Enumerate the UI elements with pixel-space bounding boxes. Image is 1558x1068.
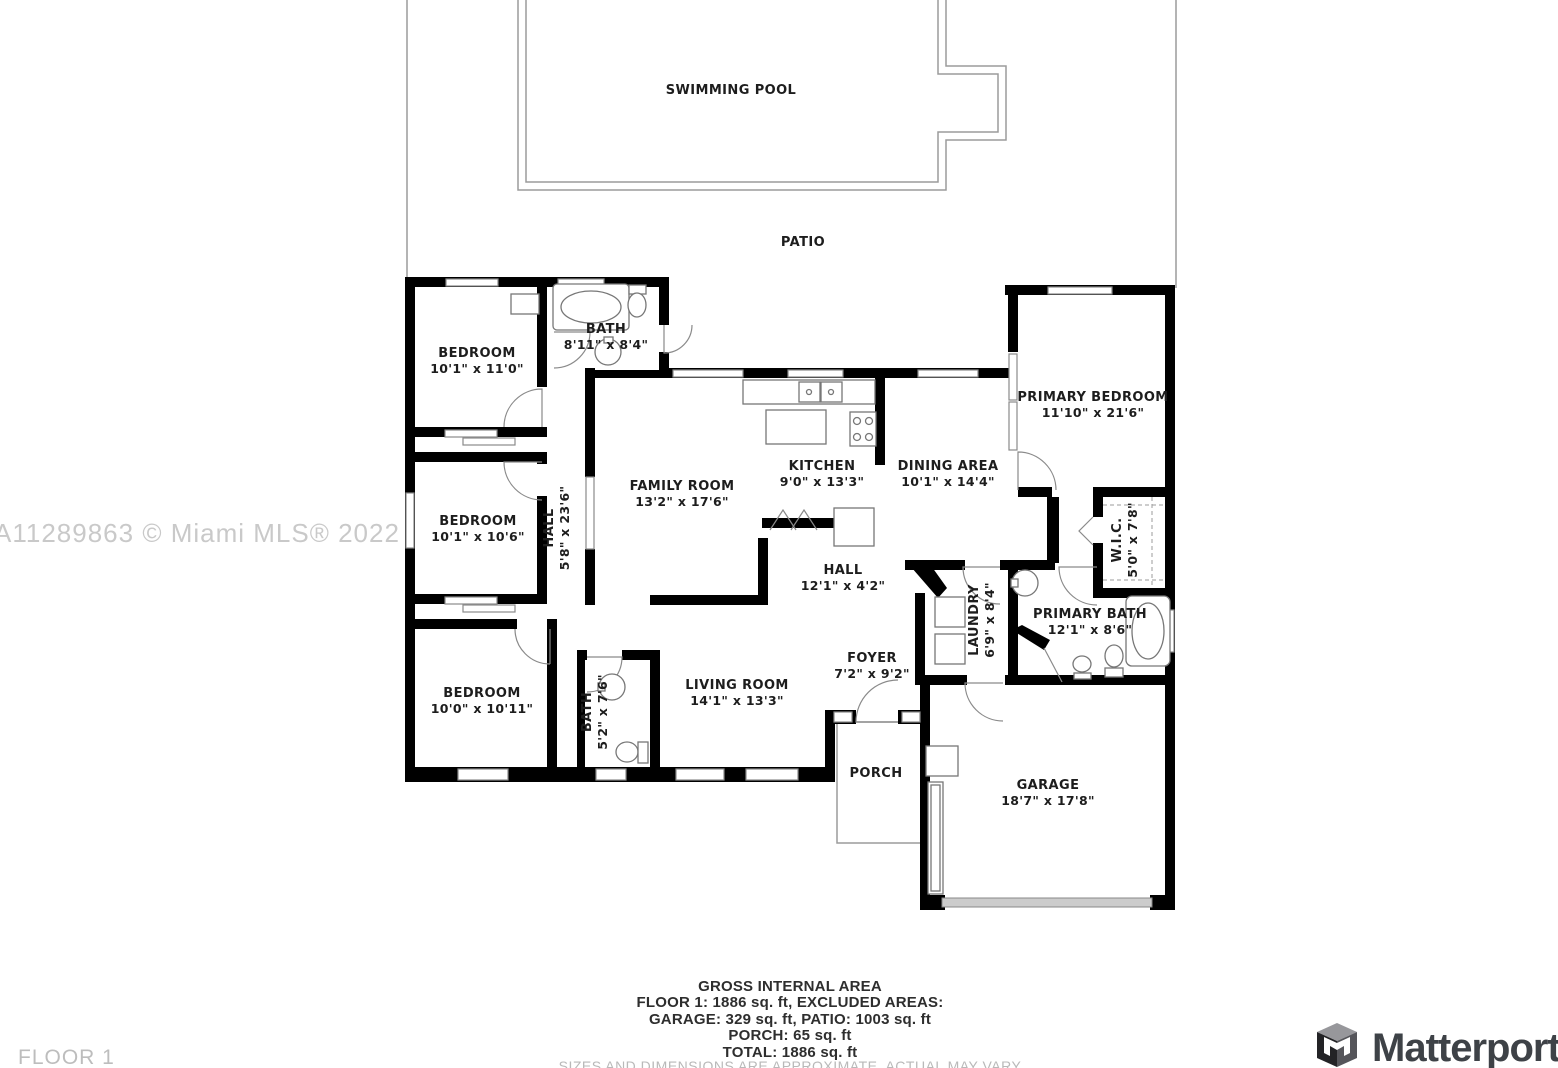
- washer-icon: [935, 597, 965, 627]
- stove-icon: [850, 412, 876, 446]
- svg-text:10'1" x 10'6": 10'1" x 10'6": [431, 529, 525, 544]
- label-dining-area: DINING AREA 10'1" x 14'4": [898, 459, 999, 489]
- svg-text:5'2" x 7'6": 5'2" x 7'6": [595, 674, 610, 750]
- svg-text:KITCHEN: KITCHEN: [789, 459, 856, 474]
- svg-text:10'1" x 11'0": 10'1" x 11'0": [430, 361, 524, 376]
- room-labels: SWIMMING POOL PATIO BEDROOM 10'1" x 11'0…: [430, 83, 1168, 808]
- label-kitchen: KITCHEN 9'0" x 13'3": [780, 459, 865, 489]
- label-wic: W.I.C. 5'0" x 7'8": [1110, 502, 1140, 578]
- svg-text:FOYER: FOYER: [847, 651, 897, 666]
- svg-text:14'1" x 13'3": 14'1" x 13'3": [690, 693, 784, 708]
- mls-watermark: A11289863 © Miami MLS® 2022: [0, 518, 400, 548]
- svg-text:12'1" x 8'6": 12'1" x 8'6": [1048, 622, 1133, 637]
- label-patio: PATIO: [781, 235, 825, 250]
- svg-text:PRIMARY BEDROOM: PRIMARY BEDROOM: [1017, 390, 1168, 405]
- summary-garage-patio: GARAGE: 329 sq. ft, PATIO: 1003 sq. ft: [649, 1011, 931, 1028]
- label-bedroom-1: BEDROOM 10'1" x 11'0": [430, 346, 524, 376]
- label-laundry: LAUNDRY 6'9" x 8'4": [967, 582, 997, 658]
- svg-text:BATH: BATH: [586, 322, 626, 337]
- svg-text:BATH: BATH: [580, 692, 595, 732]
- summary-disclaimer: SIZES AND DIMENSIONS ARE APPROXIMATE, AC…: [559, 1058, 1022, 1068]
- summary-floor: FLOOR 1: 1886 sq. ft, EXCLUDED AREAS:: [637, 994, 944, 1011]
- svg-text:BEDROOM: BEDROOM: [438, 346, 515, 361]
- label-primary-bedroom: PRIMARY BEDROOM 11'10" x 21'6": [1017, 390, 1168, 420]
- area-summary: GROSS INTERNAL AREA FLOOR 1: 1886 sq. ft…: [559, 978, 1022, 1068]
- toilet-icon: [616, 742, 638, 762]
- svg-text:LIVING ROOM: LIVING ROOM: [685, 678, 789, 693]
- svg-text:FAMILY ROOM: FAMILY ROOM: [630, 479, 735, 494]
- svg-text:HALL: HALL: [823, 563, 862, 578]
- label-swimming-pool: SWIMMING POOL: [666, 83, 796, 98]
- summary-title: GROSS INTERNAL AREA: [698, 978, 882, 995]
- svg-text:11'10" x 21'6": 11'10" x 21'6": [1042, 405, 1145, 420]
- matterport-wordmark: Matterport: [1372, 1026, 1558, 1068]
- svg-text:6'9" x 8'4": 6'9" x 8'4": [982, 582, 997, 658]
- svg-text:8'11" x 8'4": 8'11" x 8'4": [564, 337, 649, 352]
- garage-door-icon: [942, 898, 1152, 907]
- svg-text:7'2" x 9'2": 7'2" x 9'2": [834, 666, 910, 681]
- svg-text:LAUNDRY: LAUNDRY: [967, 584, 982, 656]
- label-hall-2: HALL 12'1" x 4'2": [801, 563, 886, 593]
- svg-text:DINING AREA: DINING AREA: [898, 459, 999, 474]
- label-bedroom-2: BEDROOM 10'1" x 10'6": [431, 514, 525, 544]
- floor-number-label: FLOOR 1: [18, 1046, 115, 1068]
- label-primary-bath: PRIMARY BATH 12'1" x 8'6": [1033, 607, 1147, 637]
- label-living-room: LIVING ROOM 14'1" x 13'3": [685, 678, 789, 708]
- svg-text:18'7" x 17'8": 18'7" x 17'8": [1001, 793, 1095, 808]
- svg-text:9'0" x 13'3": 9'0" x 13'3": [780, 474, 865, 489]
- porch-outline: [837, 722, 922, 843]
- floor-plan-page: SWIMMING POOL PATIO BEDROOM 10'1" x 11'0…: [0, 0, 1558, 1068]
- svg-text:PRIMARY BATH: PRIMARY BATH: [1033, 607, 1147, 622]
- floor-plan-canvas: SWIMMING POOL PATIO BEDROOM 10'1" x 11'0…: [0, 0, 1558, 1068]
- svg-text:BEDROOM: BEDROOM: [443, 686, 520, 701]
- svg-text:10'1" x 14'4": 10'1" x 14'4": [901, 474, 995, 489]
- water-heater-icon: [926, 746, 958, 776]
- dryer-icon: [935, 634, 965, 664]
- summary-porch: PORCH: 65 sq. ft: [728, 1027, 851, 1044]
- svg-text:13'2" x 17'6": 13'2" x 17'6": [635, 494, 729, 509]
- label-porch: PORCH: [849, 766, 902, 781]
- svg-text:W.I.C.: W.I.C.: [1110, 518, 1125, 563]
- svg-text:5'0" x 7'8": 5'0" x 7'8": [1125, 502, 1140, 578]
- svg-text:HALL: HALL: [542, 508, 557, 547]
- svg-text:10'0" x 10'11": 10'0" x 10'11": [431, 701, 534, 716]
- svg-text:GARAGE: GARAGE: [1017, 778, 1080, 793]
- matterport-cube-icon: [1317, 1023, 1357, 1067]
- label-bedroom-3: BEDROOM 10'0" x 10'11": [431, 686, 534, 716]
- kitchen-island-icon: [766, 410, 826, 444]
- svg-text:12'1" x 4'2": 12'1" x 4'2": [801, 578, 886, 593]
- svg-text:5'8" x 23'6": 5'8" x 23'6": [557, 486, 572, 571]
- label-family-room: FAMILY ROOM 13'2" x 17'6": [630, 479, 735, 509]
- label-foyer: FOYER 7'2" x 9'2": [834, 651, 910, 681]
- label-garage: GARAGE 18'7" x 17'8": [1001, 778, 1095, 808]
- toilet-icon: [1105, 645, 1123, 667]
- svg-text:BEDROOM: BEDROOM: [439, 514, 516, 529]
- matterport-logo: Matterport: [1317, 1023, 1558, 1068]
